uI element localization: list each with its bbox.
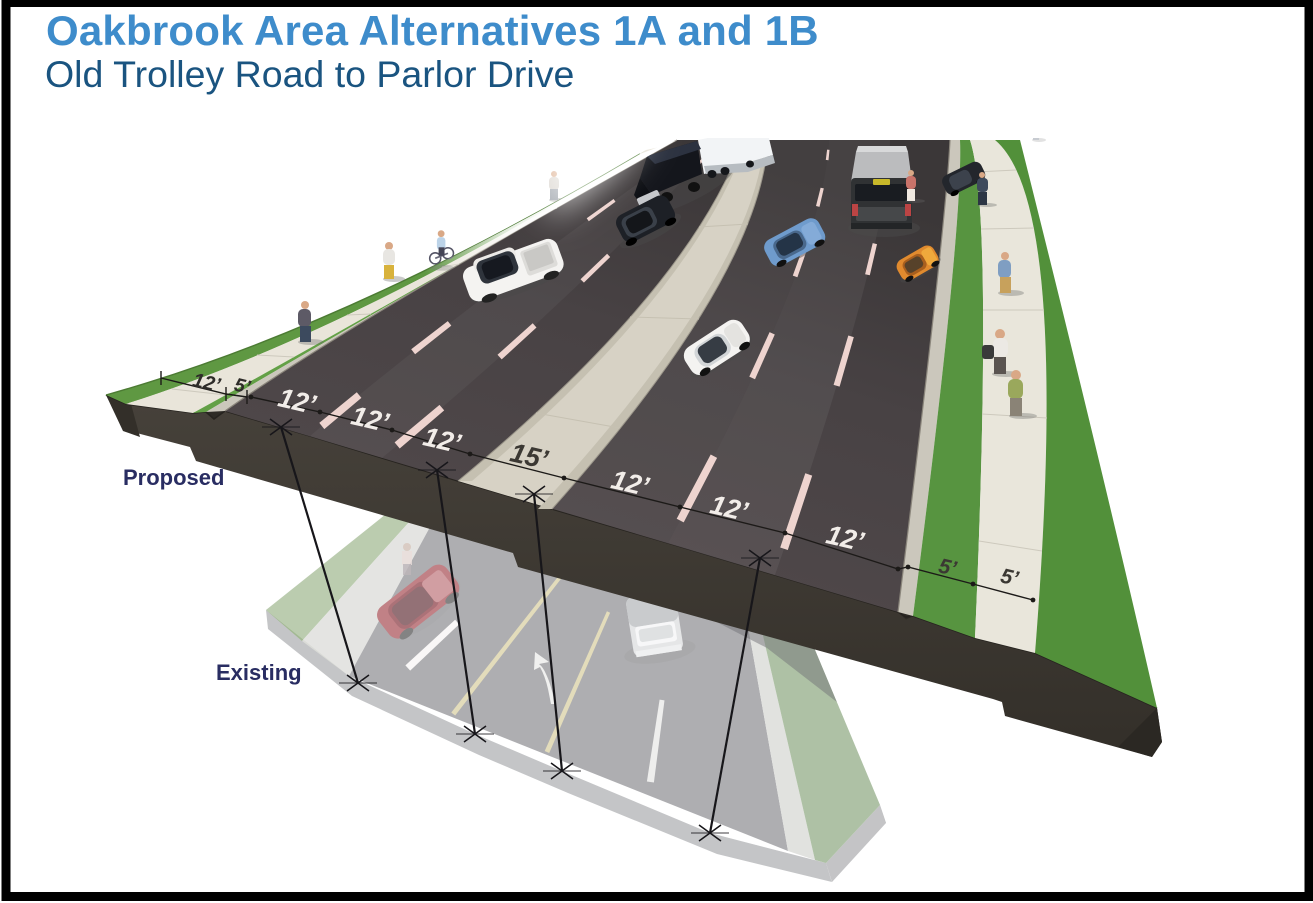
svg-text:Old Trolley Road to Parlor Dri: Old Trolley Road to Parlor Drive bbox=[45, 53, 574, 95]
svg-text:Existing: Existing bbox=[216, 660, 302, 685]
svg-text:Oakbrook Area Alternatives 1A: Oakbrook Area Alternatives 1A and 1B bbox=[46, 7, 819, 54]
svg-text:Proposed: Proposed bbox=[123, 465, 224, 490]
